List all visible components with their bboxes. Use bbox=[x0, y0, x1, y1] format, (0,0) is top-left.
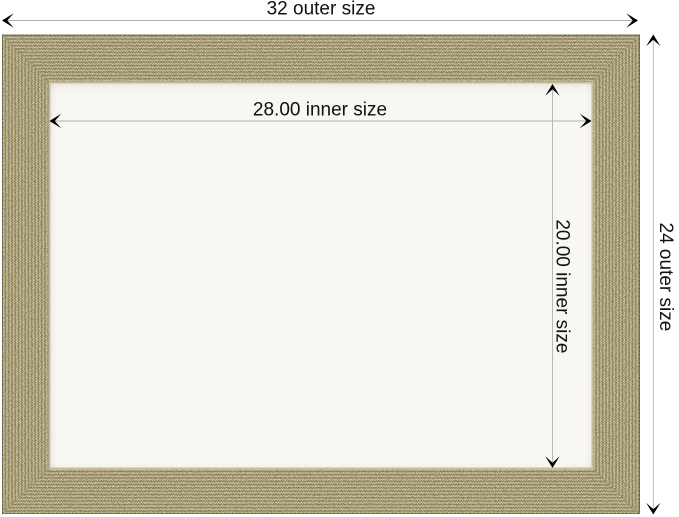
svg-text:32 outer size: 32 outer size bbox=[267, 0, 376, 20]
svg-text:28.00 inner size: 28.00 inner size bbox=[253, 100, 387, 121]
svg-text:20.00 inner size: 20.00 inner size bbox=[552, 219, 573, 353]
svg-text:24 outer size: 24 outer size bbox=[655, 223, 676, 332]
